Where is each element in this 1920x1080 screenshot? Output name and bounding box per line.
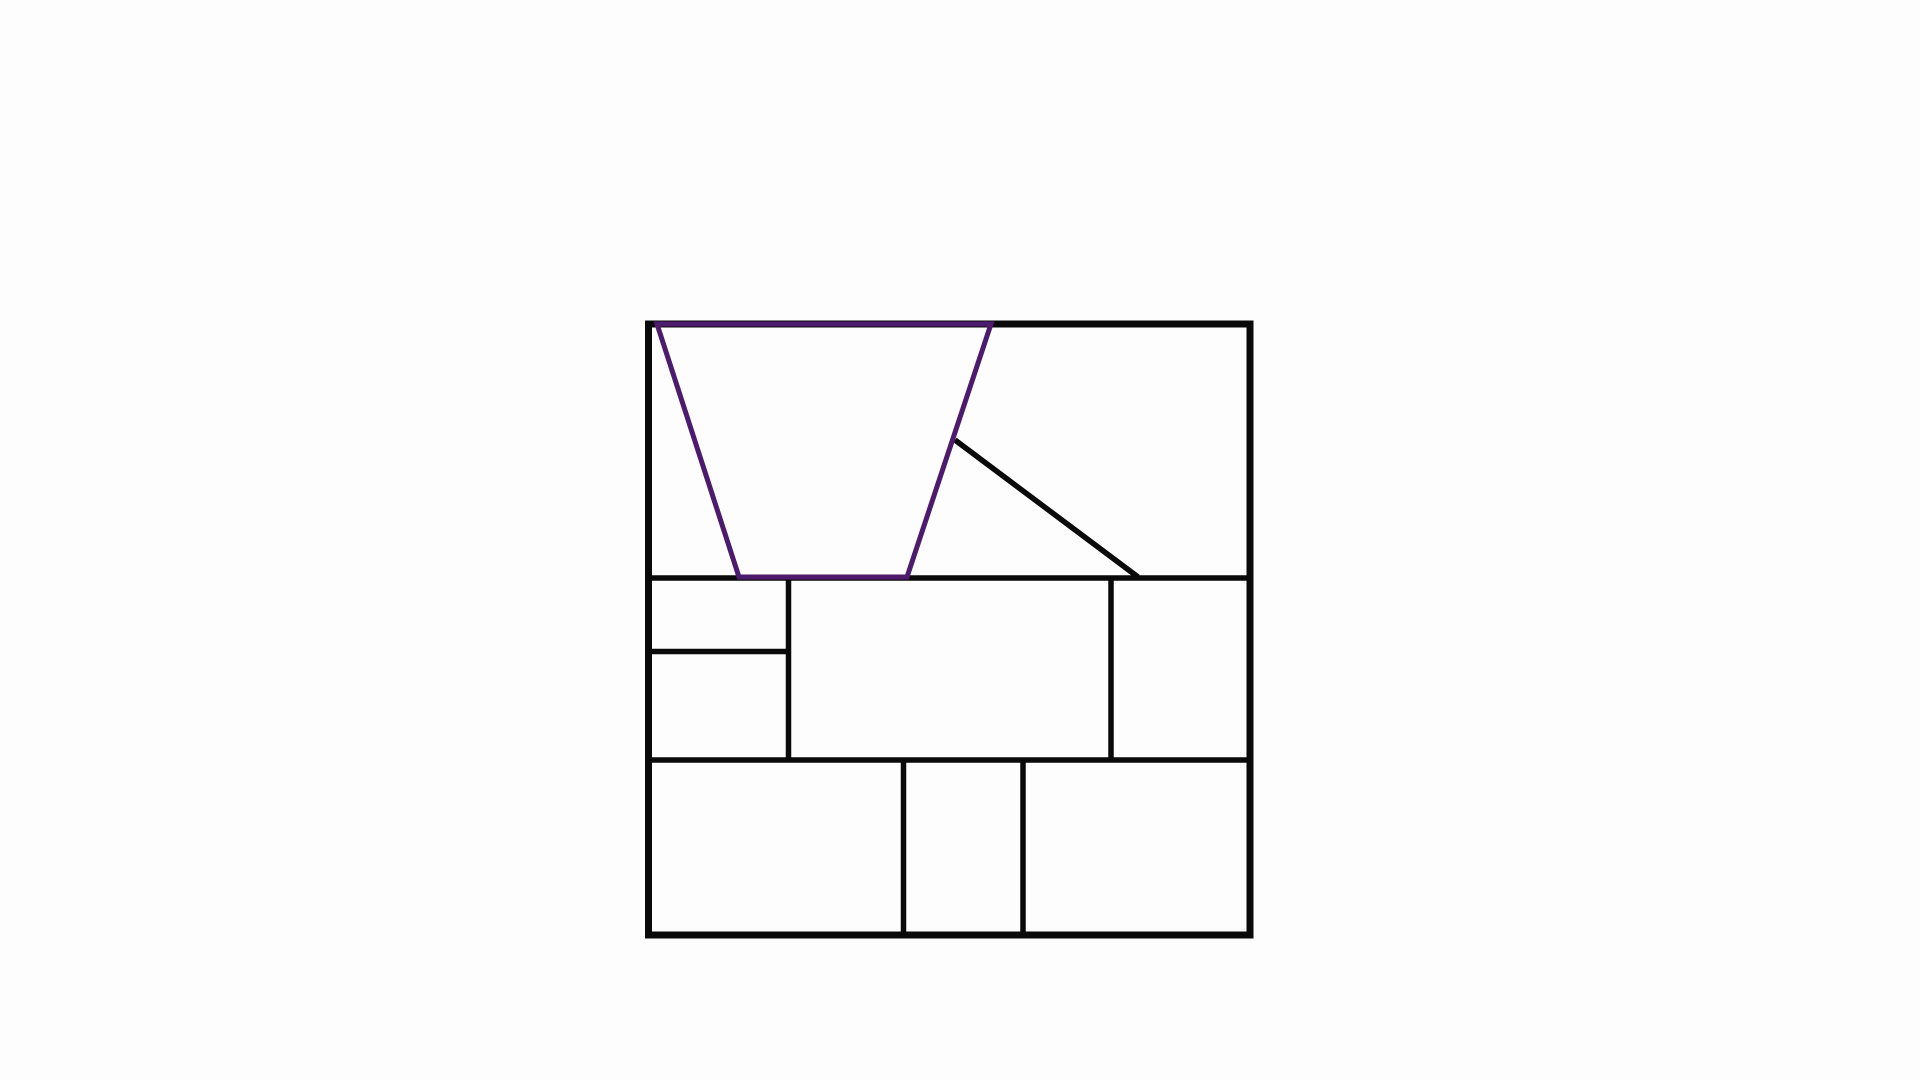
screenshot-canvas xyxy=(0,0,1920,1080)
geometry-figure xyxy=(0,0,1920,1080)
trapezoid-layer xyxy=(657,324,991,577)
black-lines-layer xyxy=(645,324,1252,936)
outer-square xyxy=(649,324,1251,935)
highlighted-trapezoid xyxy=(657,324,991,577)
diagonal-line xyxy=(955,440,1138,577)
